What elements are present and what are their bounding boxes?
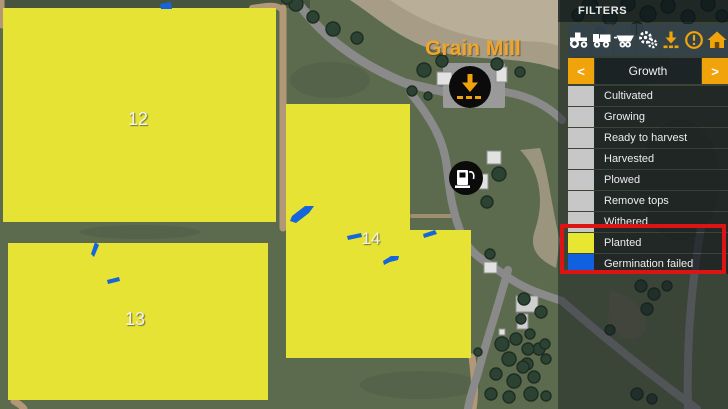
- growth-prev-button[interactable]: <: [568, 58, 594, 84]
- swatch-withered: [568, 212, 594, 232]
- panel-title: FILTERS: [558, 0, 728, 22]
- swatch-harvested: [568, 149, 594, 169]
- filter-row-cultivated[interactable]: Cultivated: [568, 86, 728, 106]
- filters-toolbar: [568, 24, 728, 56]
- filters-panel: FILTERS: [558, 0, 728, 409]
- filter-row-remove-tops[interactable]: Remove tops: [568, 191, 728, 211]
- unload-point-icon[interactable]: [449, 66, 491, 108]
- filter-label: Cultivated: [594, 86, 728, 106]
- swatch-germination-failed: [568, 254, 594, 274]
- growth-filter-list: Cultivated Growing Ready to harvest Harv…: [568, 86, 728, 274]
- tab-tools[interactable]: [637, 24, 659, 56]
- tab-notifications[interactable]: [683, 24, 705, 56]
- field-12-label: 12: [128, 109, 148, 129]
- filter-label: Planted: [594, 233, 728, 253]
- unload-arrow-icon: [660, 29, 682, 51]
- filter-label: Ready to harvest: [594, 128, 728, 148]
- tab-tractors[interactable]: [568, 24, 590, 56]
- filter-label: Plowed: [594, 170, 728, 190]
- filter-label: Germination failed: [594, 254, 728, 274]
- filter-row-germination-failed[interactable]: Germination failed: [568, 254, 728, 274]
- swatch-plowed: [568, 170, 594, 190]
- filter-row-ready-to-harvest[interactable]: Ready to harvest: [568, 128, 728, 148]
- swatch-remove-tops: [568, 191, 594, 211]
- filter-label: Remove tops: [594, 191, 728, 211]
- gears-icon: [637, 29, 659, 51]
- fuel-station-icon[interactable]: [449, 161, 483, 195]
- home-icon: [706, 29, 728, 51]
- filter-label: Harvested: [594, 149, 728, 169]
- filter-row-planted[interactable]: Planted: [568, 233, 728, 253]
- swatch-ready-to-harvest: [568, 128, 594, 148]
- growth-selector-label: Growth: [595, 58, 701, 84]
- tab-trucks[interactable]: [591, 24, 613, 56]
- filter-row-withered[interactable]: Withered: [568, 212, 728, 232]
- filter-label: Withered: [594, 212, 728, 232]
- swatch-growing: [568, 107, 594, 127]
- filter-row-plowed[interactable]: Plowed: [568, 170, 728, 190]
- tab-unload-points[interactable]: [660, 24, 682, 56]
- filter-row-growing[interactable]: Growing: [568, 107, 728, 127]
- swatch-cultivated: [568, 86, 594, 106]
- filter-row-harvested[interactable]: Harvested: [568, 149, 728, 169]
- grain-mill-label: Grain Mill: [425, 37, 521, 60]
- tractor-icon: [568, 29, 590, 51]
- swatch-planted: [568, 233, 594, 253]
- growth-next-button[interactable]: >: [702, 58, 728, 84]
- field-14-label: 14: [362, 229, 381, 248]
- truck-icon: [591, 29, 613, 51]
- tab-home[interactable]: [706, 24, 728, 56]
- game-map-screen: Grain Mill 12 13 14 FILTERS: [0, 0, 728, 409]
- filter-label: Growing: [594, 107, 728, 127]
- warning-icon: [683, 29, 705, 51]
- trailer-icon: [614, 29, 636, 51]
- field-13-label: 13: [125, 309, 145, 329]
- tab-trailers[interactable]: [614, 24, 636, 56]
- growth-selector: < Growth >: [568, 58, 728, 84]
